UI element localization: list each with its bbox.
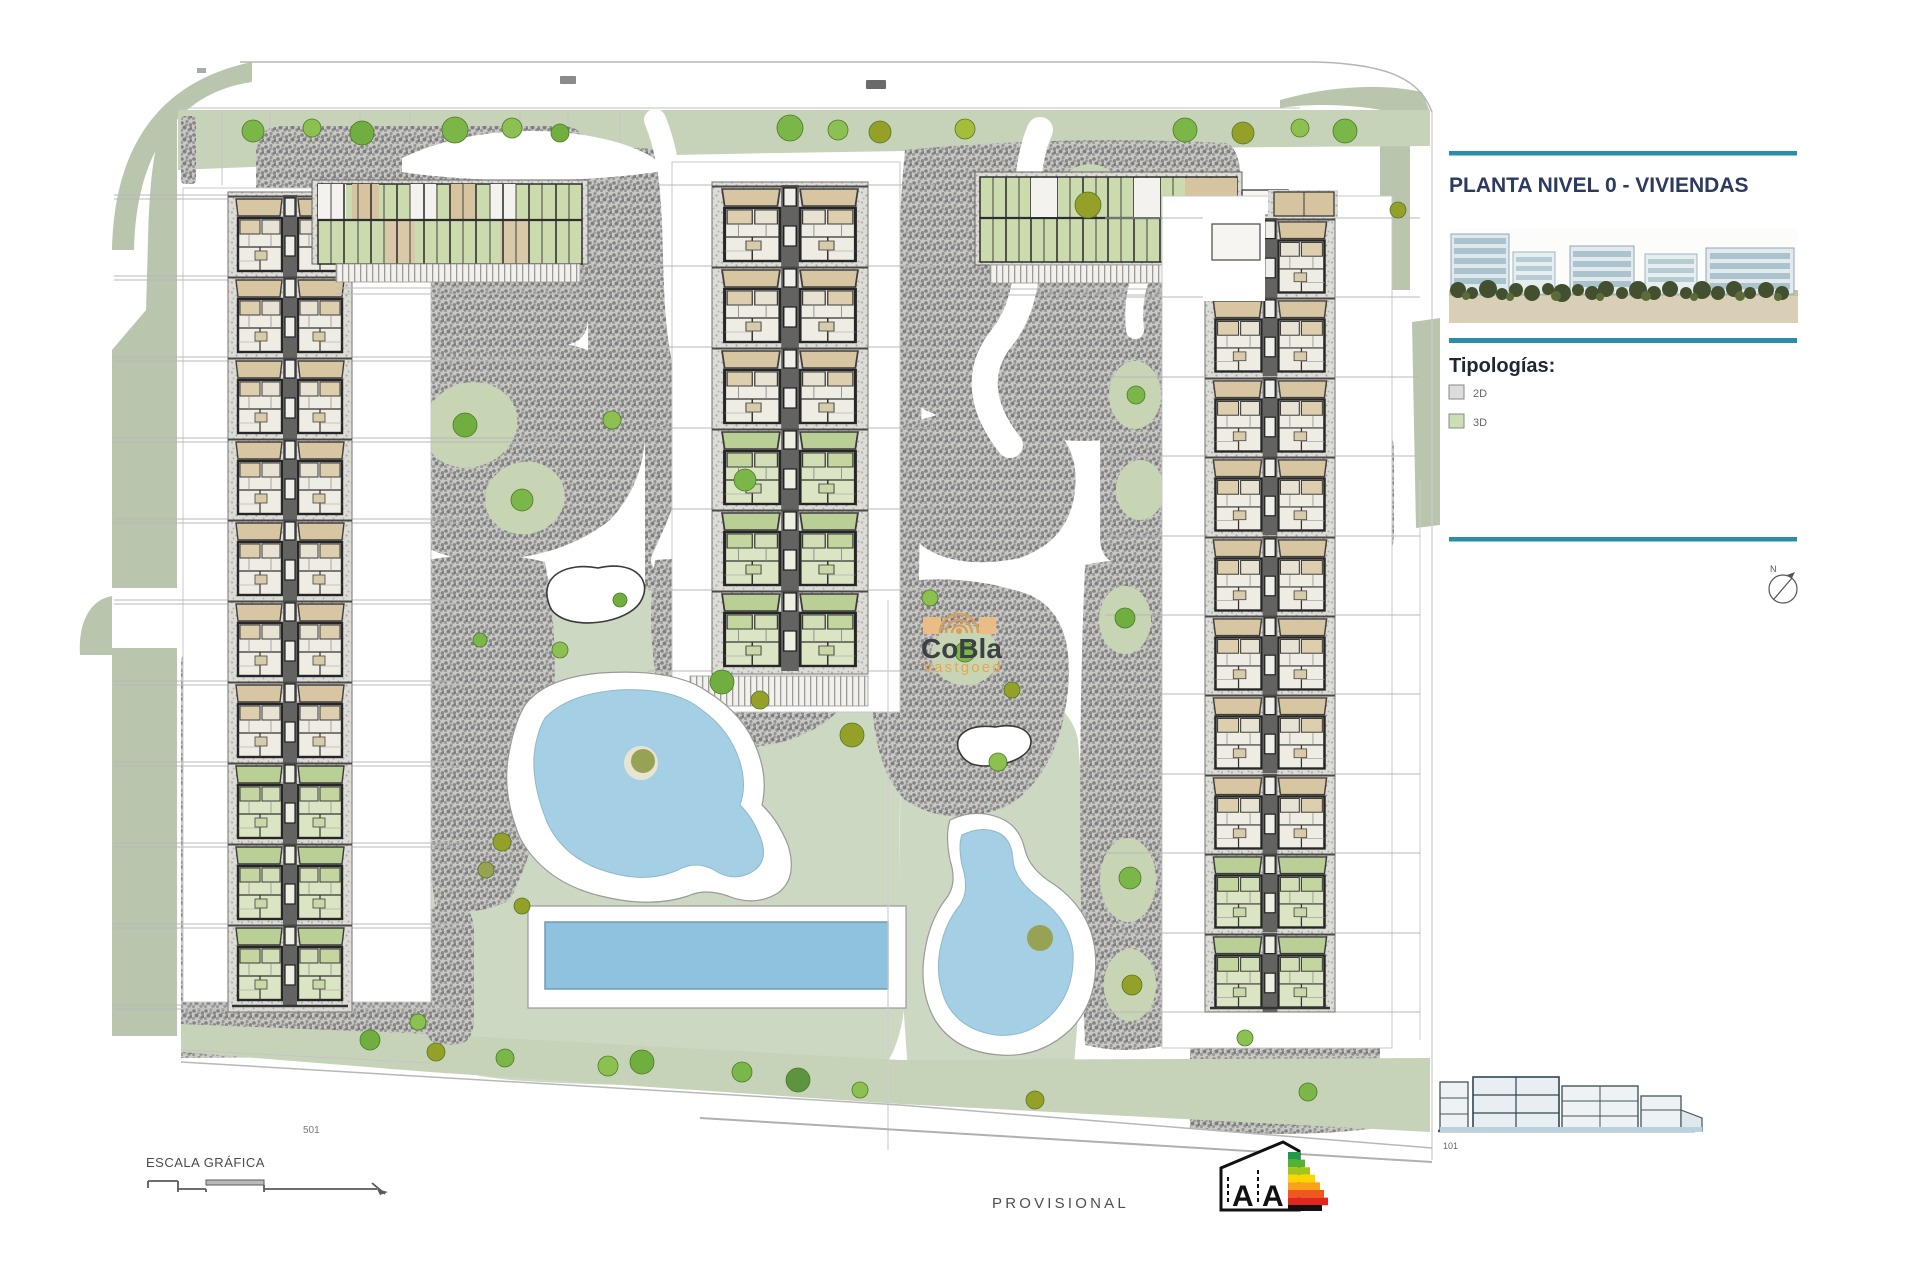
svg-text:PLANTA NIVEL 0 - VIVIENDAS: PLANTA NIVEL 0 - VIVIENDAS <box>1449 174 1749 197</box>
svg-text:A: A <box>1232 1180 1254 1213</box>
svg-text:Vastgoed: Vastgoed <box>923 659 1003 676</box>
svg-text:ESCALA GRÁFICA: ESCALA GRÁFICA <box>146 1155 265 1170</box>
svg-text:2D: 2D <box>1473 388 1487 400</box>
svg-text:Tipologías:: Tipologías: <box>1449 355 1555 377</box>
svg-text:PROVISIONAL: PROVISIONAL <box>992 1195 1129 1212</box>
svg-text:N: N <box>1770 564 1777 574</box>
svg-text:101: 101 <box>1443 1141 1458 1151</box>
svg-text:501: 501 <box>303 1125 320 1136</box>
svg-text:3D: 3D <box>1473 417 1487 429</box>
svg-text:A: A <box>1262 1180 1284 1213</box>
